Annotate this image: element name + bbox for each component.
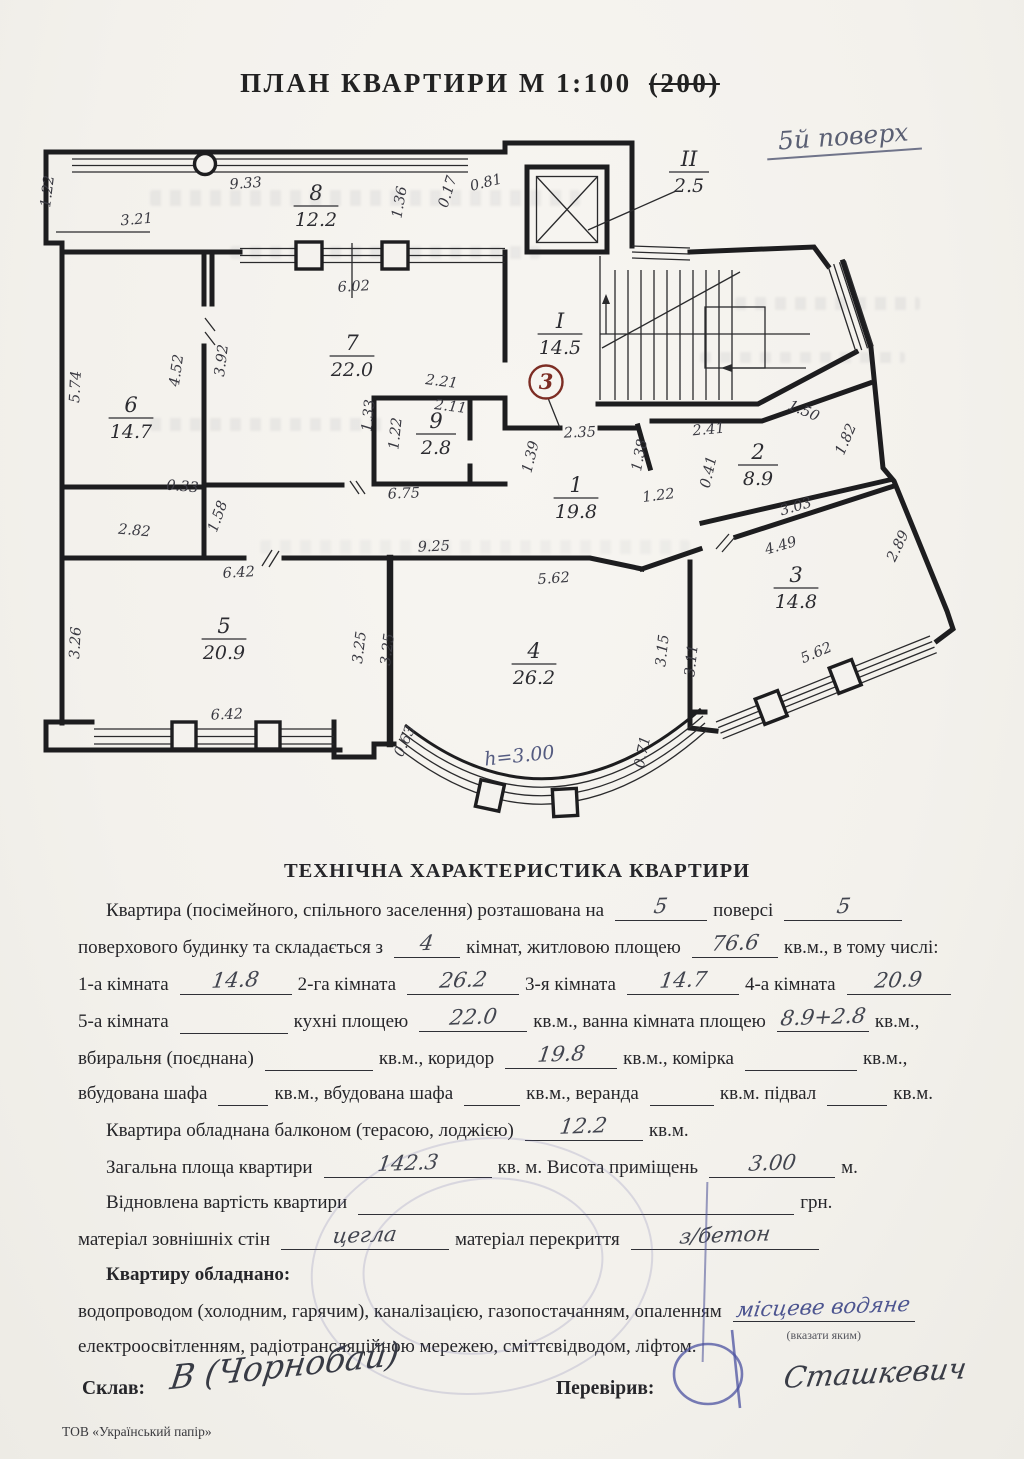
form-printed-text: грн. (800, 1192, 832, 1213)
room-number-label: 5 (217, 614, 230, 638)
plan-title-text: ПЛАН КВАРТИРИ М 1:100 (240, 68, 632, 98)
room-number-label: 2 (750, 440, 764, 464)
room-number-label: 1 (569, 473, 582, 497)
checked-by-signature: Сташкевич (781, 1351, 969, 1395)
handwritten-value: 20.9 (873, 967, 923, 993)
dimension-label: 0.41 (698, 455, 721, 490)
form-blank-field: 5 (615, 897, 707, 921)
walls (46, 143, 953, 757)
form-blank-field (265, 1047, 373, 1071)
page-title: ПЛАН КВАРТИРИ М 1:100 (200) (0, 68, 960, 99)
paper-manufacturer-note: ТОВ «Український папір» (62, 1424, 212, 1440)
room-number-label: 9 (429, 409, 442, 433)
dimension-label: 0.33 (166, 478, 200, 497)
handwritten-value: 4 (419, 931, 436, 955)
form-blank-field: 76.6 (692, 934, 778, 958)
window-column-post (195, 154, 216, 175)
dimension-label: 2.82 (117, 522, 152, 541)
form-printed-text: Загальна площа квартири (106, 1157, 313, 1178)
plan-labels: 812.2614.7722.092.8119.8520.9426.228.931… (38, 147, 913, 771)
form-printed-text: вбиральня (поєднана) (78, 1048, 254, 1069)
handwritten-value: 76.6 (710, 930, 760, 956)
dimension-label: 6.75 (387, 485, 420, 502)
form-printed-text: кв.м., веранда (526, 1083, 639, 1104)
form-blank-field: місцеве водяне(вказати яким) (733, 1298, 915, 1322)
handwritten-value: з/бетон (678, 1221, 772, 1248)
form-printed-text: кімнат, житловою площею (466, 937, 681, 958)
form-printed-text: 1-а кімната (78, 974, 169, 995)
bleedthrough-smudge (735, 297, 920, 310)
dimension-label: 5.62 (537, 570, 570, 588)
form-blank-field: 19.8 (505, 1045, 617, 1069)
form-line: вбудована шафакв.м., вбудована шафакв.м.… (78, 1082, 956, 1106)
dimension-label: 6.02 (337, 278, 370, 296)
bay-window (396, 709, 707, 804)
scanned-document-page: ПЛАН КВАРТИРИ М 1:100 (200) 5й поверх (0, 0, 1024, 1459)
handwritten-value: 14.7 (658, 967, 708, 993)
made-by-label: Склав: (82, 1378, 145, 1400)
checked-by-signature-loop (666, 1324, 762, 1416)
dimension-label: 2.11 (432, 397, 467, 417)
form-blank-field: 26.2 (407, 971, 519, 995)
form-printed-text: кв.м. (893, 1083, 933, 1104)
form-blank-field (464, 1082, 520, 1106)
window-post (552, 788, 577, 816)
bleedthrough-smudge (230, 246, 540, 259)
window-post (475, 780, 504, 811)
staircase (600, 256, 810, 400)
handwritten-value: 3.00 (747, 1150, 797, 1176)
dimension-label: 3.11 (682, 644, 701, 678)
dimension-label: 4.52 (167, 353, 187, 388)
form-printed-text: 3-я кімната (525, 974, 616, 995)
dimension-label: 6.42 (210, 706, 243, 723)
dimension-label: 3.03 (778, 495, 813, 519)
dimension-label: 0.71 (632, 735, 654, 770)
form-line: Квартира (посімейного, спільного заселен… (78, 897, 956, 923)
form-line: поверхового будинку та складається з4кім… (78, 934, 956, 960)
dimension-label: 3.15 (653, 634, 672, 668)
dimension-label: 1.38 (629, 438, 651, 473)
room-number-label: I (555, 309, 565, 333)
form-line: вбиральня (поєднана)кв.м., коридор19.8кв… (78, 1045, 956, 1071)
dimension-label: 2.35 (562, 424, 596, 441)
room-number-label: 7 (345, 331, 359, 355)
room-number-label: 3 (789, 563, 802, 587)
form-section-title: ТЕХНІЧНА ХАРАКТЕРИСТИКА КВАРТИРИ (78, 860, 956, 883)
dimension-label: 1.39 (519, 439, 542, 474)
dimension-label: 2.21 (423, 372, 458, 392)
handwritten-value: 26.2 (438, 967, 488, 993)
form-printed-text: Відновлена вартість квартири (106, 1192, 347, 1213)
dimension-label: 3.26 (67, 626, 85, 659)
room-area-label: 22.0 (330, 359, 373, 381)
dimension-label: 3.25 (350, 631, 370, 665)
ceiling-height-note: h=3.00 (483, 741, 555, 770)
form-blank-field: 14.7 (627, 971, 739, 995)
handwritten-value: 8.9+2.8 (779, 1004, 867, 1031)
form-printed-text: м. (841, 1157, 858, 1178)
dimension-label: 3.25 (378, 633, 398, 667)
form-printed-text: Квартиру обладнано: (106, 1264, 290, 1285)
form-printed-text: 4-а кімната (745, 974, 836, 995)
window-post (829, 660, 861, 694)
bleedthrough-smudge (150, 190, 580, 206)
form-printed-text: кв.м. (649, 1120, 689, 1141)
room-area-label: 14.8 (775, 591, 817, 613)
form-printed-text: кв.м., ванна кімната площею (533, 1011, 766, 1032)
blank-caption: (вказати яким) (787, 1323, 861, 1347)
dimension-label: 5.74 (67, 370, 85, 403)
room-area-label: 8.9 (743, 468, 773, 490)
room-area-label: 2.8 (420, 437, 451, 459)
window-post (256, 722, 280, 749)
form-printed-text: 2-га кімната (298, 974, 396, 995)
form-blank-field: 12.2 (525, 1117, 643, 1141)
dimension-label: 1.58 (205, 499, 231, 535)
form-printed-text: поверхового будинку та складається з (78, 937, 383, 958)
room-area-label: 14.7 (110, 421, 153, 443)
form-printed-text: кв.м., (863, 1048, 907, 1069)
dimension-label: 3.21 (120, 211, 154, 230)
form-printed-text: Квартира обладнана балконом (терасою, ло… (106, 1120, 514, 1141)
dimension-label: 6.42 (222, 564, 255, 582)
form-printed-text: 5-а кімната (78, 1011, 169, 1032)
floor-note-handwritten: 5й поверх (765, 117, 921, 161)
form-blank-field: з/бетон (631, 1226, 819, 1250)
door-marks (205, 243, 735, 567)
bleedthrough-smudge (150, 418, 390, 431)
handwritten-value: 5 (653, 894, 670, 918)
form-printed-text: кв.м., коридор (379, 1048, 494, 1069)
form-printed-text: кв.м. підвал (720, 1083, 816, 1104)
form-printed-text: матеріал зовнішніх стін (78, 1229, 270, 1250)
stair-direction-arrowhead (721, 364, 732, 372)
form-blank-field (218, 1082, 268, 1106)
handwritten-value: 22.0 (448, 1004, 498, 1030)
form-printed-text: кв.м., в тому числі: (784, 937, 939, 958)
room-area-label: 26.2 (512, 667, 555, 689)
form-line: 1-а кімната14.82-га кімната26.23-я кімна… (78, 971, 956, 997)
form-blank-field: 4 (394, 934, 460, 958)
room-number-label: II (680, 147, 698, 171)
room-number-label: 6 (124, 393, 137, 417)
checked-by-label: Перевірив: (556, 1378, 654, 1400)
bleedthrough-smudge (700, 352, 905, 363)
form-blank-field (745, 1047, 857, 1071)
form-printed-text: поверсі (713, 900, 773, 921)
dimension-label: 2.89 (884, 528, 913, 565)
form-printed-text: вбудована шафа (78, 1083, 207, 1104)
dimension-label: 1.82 (833, 421, 860, 457)
form-printed-text: кв.м., комірка (623, 1048, 734, 1069)
room-number-label: 4 (526, 639, 540, 663)
apartment-number-circle (530, 366, 563, 399)
room-area-label: 19.8 (555, 501, 597, 523)
form-blank-field: 8.9+2.8 (777, 1008, 869, 1032)
stair-up-arrowhead (602, 294, 610, 304)
form-line: 5-а кімнатакухні площею22.0кв.м., ванна … (78, 1008, 956, 1034)
room-area-label: 12.2 (295, 209, 337, 231)
room-area-label: 20.9 (202, 642, 245, 664)
apartment-number-mark: 3 (539, 369, 554, 394)
form-printed-text: Квартира (посімейного, спільного заселен… (106, 900, 604, 921)
form-printed-text: кв.м., (875, 1011, 919, 1032)
plan-title-struck-scale: (200) (649, 68, 720, 98)
form-blank-field: 3.00 (709, 1154, 835, 1178)
form-printed-text: кв.м., вбудована шафа (274, 1083, 453, 1104)
handwritten-value: 19.8 (536, 1041, 586, 1067)
handwritten-value: місцеве водяне (735, 1292, 912, 1322)
handwritten-value: 5 (835, 894, 852, 918)
handwritten-value: 12.2 (559, 1113, 609, 1139)
form-blank-field: 5 (784, 897, 902, 921)
window-post (755, 691, 787, 725)
form-printed-text: кухні площею (294, 1011, 409, 1032)
dimension-label: 0.63 (391, 723, 419, 759)
elevator-shaft (527, 167, 676, 252)
dimension-label: 5.62 (798, 640, 834, 667)
window-post (172, 722, 196, 749)
form-blank-field: 14.8 (180, 971, 292, 995)
form-blank-field (827, 1082, 887, 1106)
dimension-label: 1.50 (786, 398, 822, 425)
form-blank-field: 22.0 (419, 1008, 527, 1032)
dimension-label: 2.41 (691, 421, 726, 440)
room-area-label: 2.5 (673, 175, 704, 197)
form-blank-field: 20.9 (847, 971, 951, 995)
room-area-label: 14.5 (539, 337, 581, 359)
form-blank-field (650, 1082, 714, 1106)
bleedthrough-smudge (260, 540, 690, 554)
handwritten-value: 14.8 (210, 967, 260, 993)
dimension-label: 4.49 (762, 534, 798, 559)
form-blank-field (180, 1010, 288, 1034)
dimension-label: 1.22 (642, 486, 676, 506)
dimension-label: 3.92 (212, 344, 232, 378)
dimension-label: 1.22 (38, 175, 58, 209)
